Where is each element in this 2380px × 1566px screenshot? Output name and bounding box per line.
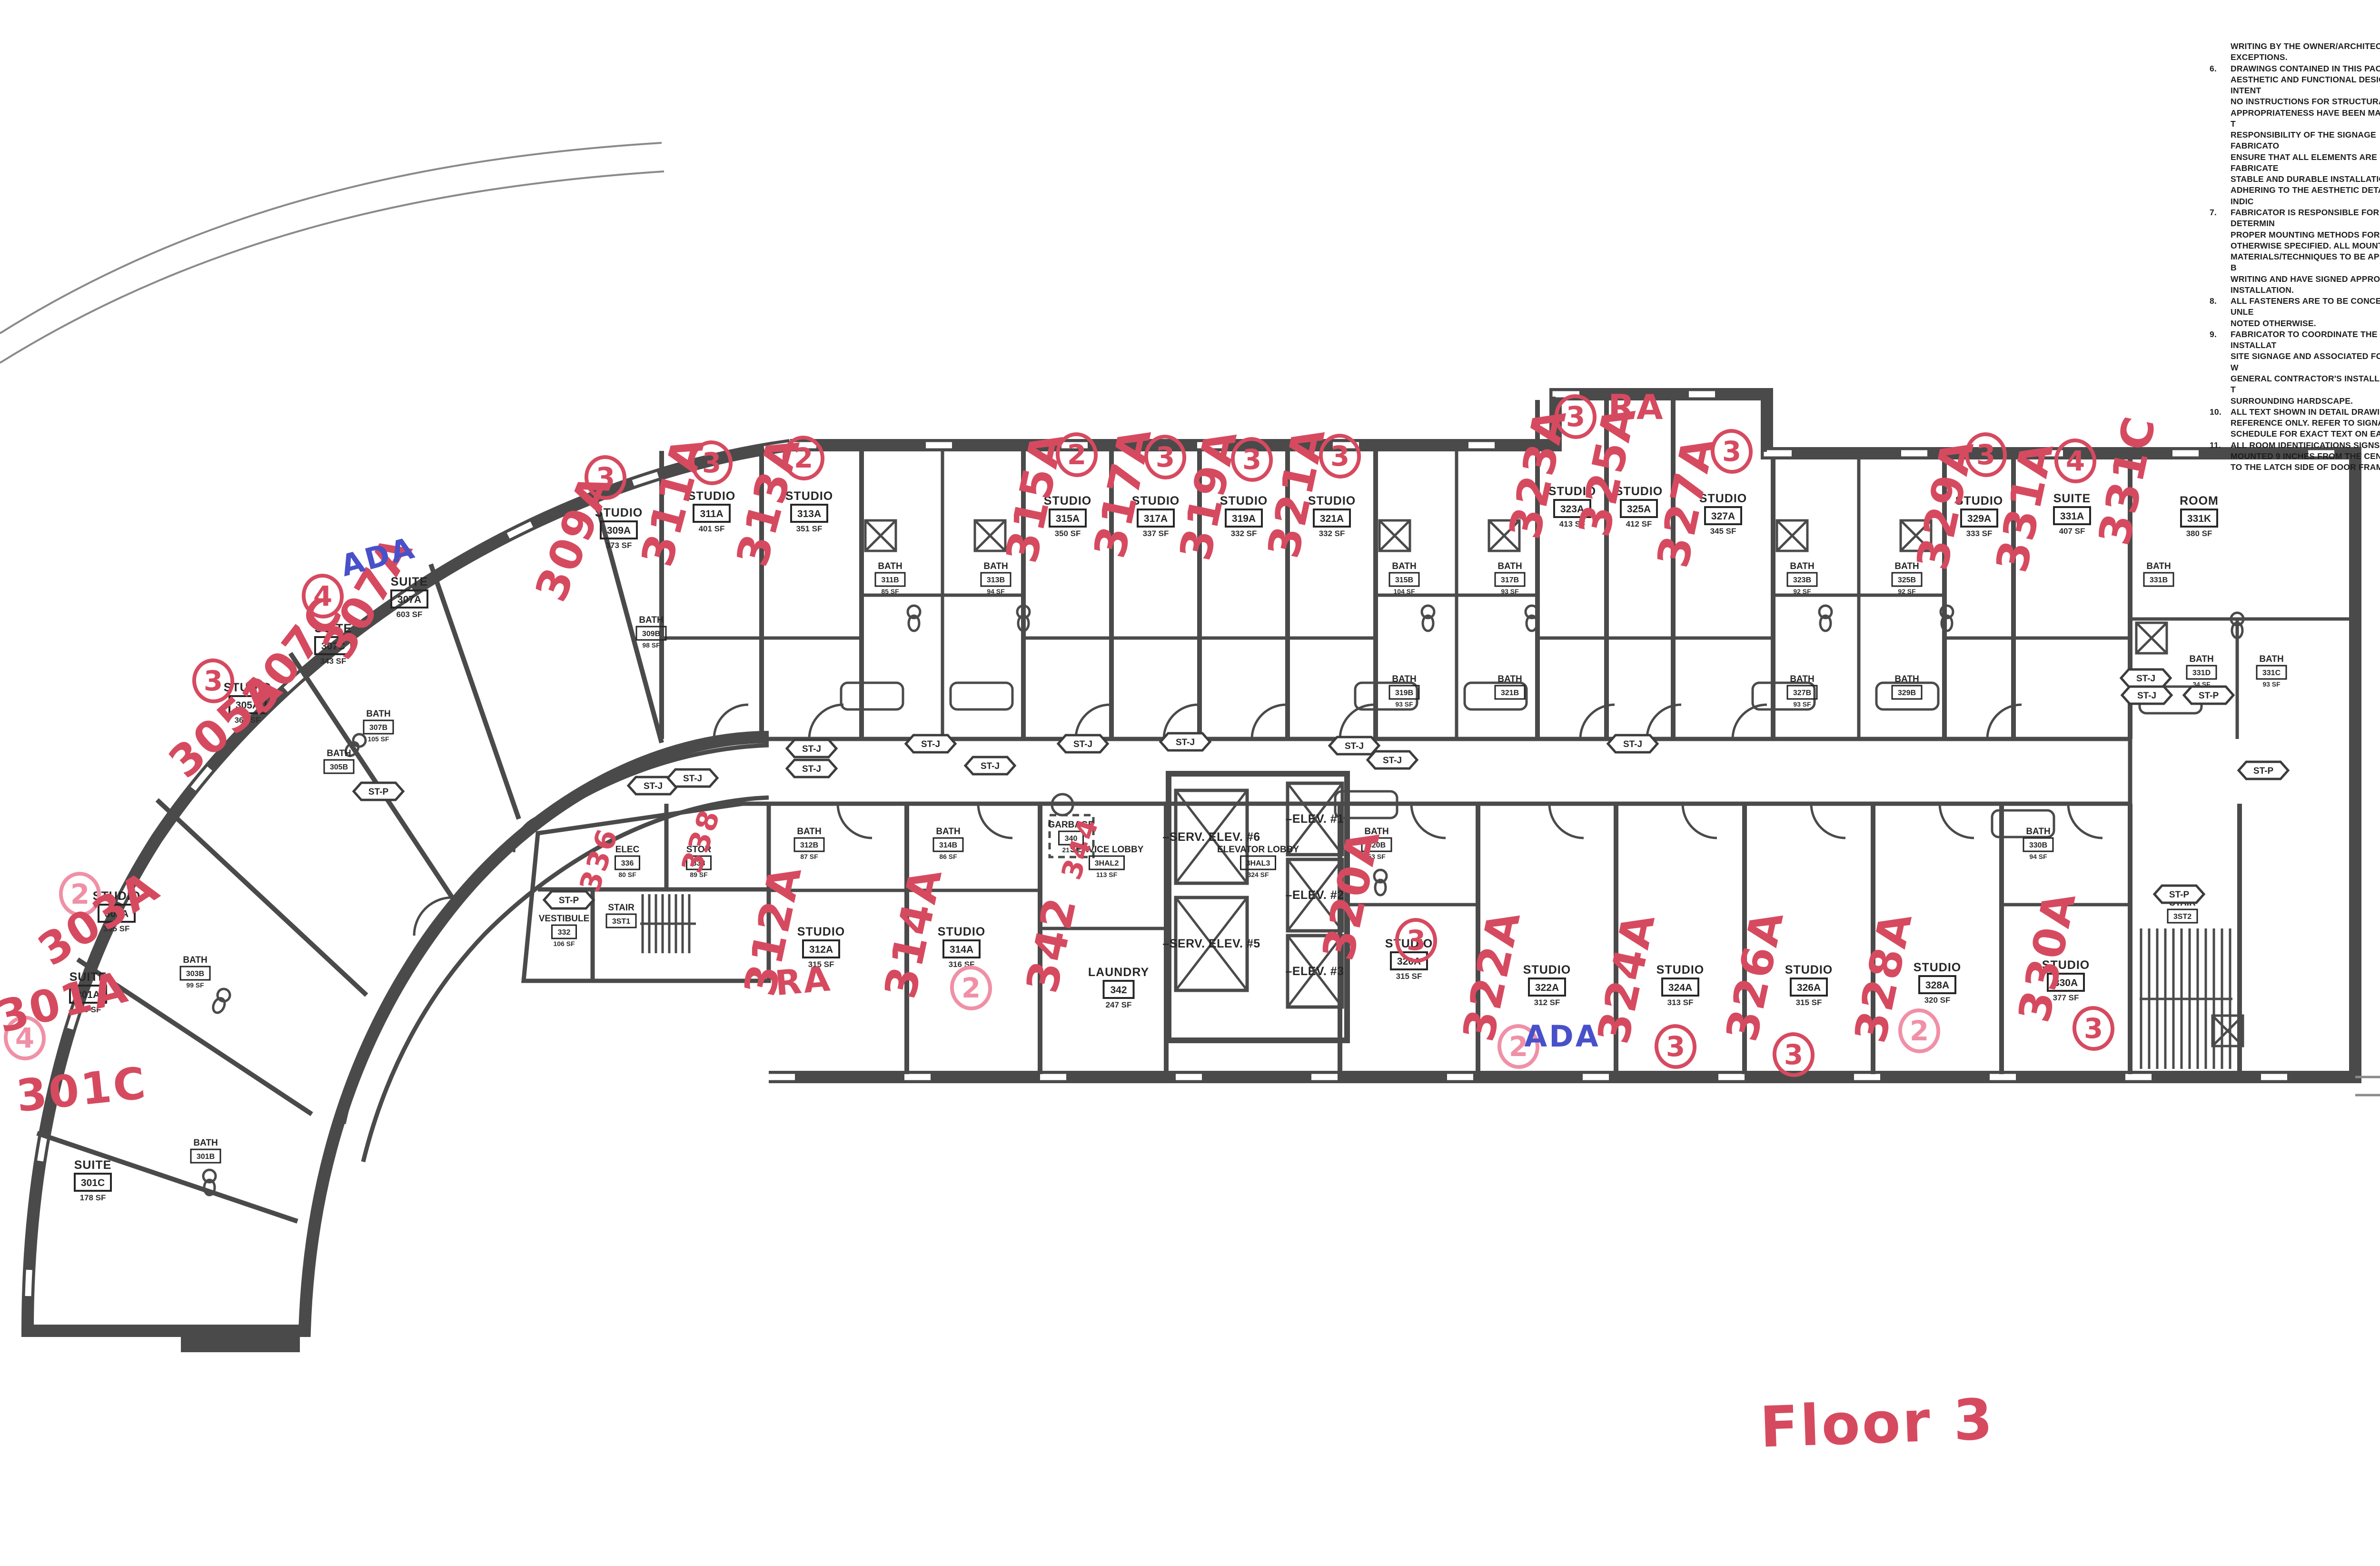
room-tag-text: 327A — [1711, 511, 1735, 522]
note-line: NO INSTRUCTIONS FOR STRUCTURAL — [2210, 96, 2380, 107]
note-number: 8. — [2210, 296, 2217, 307]
room-tag-text: 317A — [1144, 513, 1168, 524]
tag-ST-J: ST-J — [965, 757, 1015, 774]
room-type-text: BATH — [1392, 674, 1416, 684]
room-label-331A: SUITE331A407 SF — [2053, 492, 2091, 536]
room-label-327B: BATH327B93 SF — [1787, 674, 1817, 708]
note-line: MOUNTED 9 INCHES FROM THE CENTER OF T — [2210, 451, 2380, 462]
room-type-text: BATH — [1497, 561, 1522, 571]
room-type-text: BATH — [983, 561, 1008, 571]
tag-ST-J: ST-J — [1160, 733, 1210, 750]
room-tag-text: 313A — [797, 509, 821, 519]
room-tag-text: 301B — [197, 1153, 215, 1161]
room-label-313B: BATH313B94 SF — [981, 561, 1011, 595]
note-line: INSTALLATION. — [2210, 285, 2380, 296]
room-type-text: BATH — [183, 955, 207, 965]
room-tag-text: 321A — [1320, 513, 1344, 524]
room-tag-text: 307B — [369, 724, 387, 732]
handwritten-338: 338 — [675, 805, 727, 877]
room-label-331C: BATH331C93 SF — [2257, 654, 2286, 688]
room-sf-text: 401 SF — [699, 524, 725, 533]
hexagon-tag-text: ST-P — [368, 787, 389, 797]
room-tag-text: 312B — [800, 841, 818, 849]
elevator-label: –ELEV. #1 — [1285, 812, 1344, 826]
count-circle-number: 2 — [1910, 1015, 1929, 1047]
count-circle: 2 — [949, 965, 992, 1011]
room-type-text: STUDIO — [1914, 961, 1961, 974]
room-tag-text: 326A — [1797, 982, 1821, 993]
room-tag-text: 305B — [330, 763, 348, 771]
note-line: SITE SIGNAGE AND ASSOCIATED FOOTINGS W — [2210, 351, 2380, 373]
room-sf-text: 94 SF — [987, 588, 1005, 595]
room-label-331K: ROOM331K380 SF — [2180, 494, 2219, 538]
room-type-text: VESTIBULE — [539, 914, 590, 924]
handwritten-floor-3: Floor 3 — [1759, 1386, 1995, 1460]
room-sf-text: 86 SF — [939, 853, 957, 860]
tag-ST-P: ST-P — [544, 891, 594, 908]
note-line: OTHERWISE SPECIFIED. ALL MOUNTING — [2210, 240, 2380, 251]
room-type-text: ROOM — [2180, 494, 2219, 508]
handwritten-ra: RA — [1608, 387, 1665, 427]
note-line: AESTHETIC AND FUNCTIONAL DESIGN INTENT — [2210, 74, 2380, 97]
count-circle-number: 2 — [962, 972, 981, 1004]
note-line: SURROUNDING HARDSCAPE. — [2210, 396, 2380, 407]
note-number: 10. — [2210, 407, 2221, 418]
balcony-strip — [181, 1333, 300, 1352]
room-type-text: STUDIO — [1523, 963, 1571, 977]
room-label-305B: BATH305B — [324, 748, 354, 773]
room-sf-text: 350 SF — [1055, 529, 1081, 538]
floor-plan-drawing: STUDIO309A373 SFSTUDIO311A401 SFSTUDIO31… — [0, 0, 2380, 1566]
note-line: WRITING AND HAVE SIGNED APPROVAL PRIO — [2210, 274, 2380, 285]
note-line: ADHERING TO THE AESTHETIC DETAILS INDIC — [2210, 185, 2380, 207]
room-label-311B: BATH311B85 SF — [875, 561, 905, 595]
room-tag-text: 327B — [1793, 689, 1811, 697]
note-line: RESPONSIBILITY OF THE SIGNAGE FABRICATO — [2210, 130, 2380, 152]
room-sf-text: 324 SF — [1247, 871, 1269, 878]
note-line: 6.DRAWINGS CONTAINED IN THIS PACKAGE AR — [2210, 63, 2380, 74]
hexagon-tag-text: ST-P — [2169, 890, 2190, 900]
room-type-text: SUITE — [74, 1158, 112, 1172]
room-label-314A: STUDIO314A316 SF — [938, 925, 985, 969]
note-line: REFERENCE ONLY. REFER TO SIGNAGE MESS — [2210, 418, 2380, 429]
count-circle: 3 — [1654, 1024, 1697, 1069]
tag-ST-J: ST-J — [668, 769, 717, 787]
room-type-text: BATH — [2146, 561, 2171, 571]
hexagon-tag-text: ST-J — [921, 739, 940, 749]
room-tag-text: 329B — [1898, 689, 1916, 697]
room-sf-text: 313 SF — [1667, 998, 1694, 1007]
room-tag-text: 3HAL3 — [1246, 859, 1270, 868]
room-type-text: BATH — [2259, 654, 2283, 664]
room-tag-text: 331D — [2192, 669, 2211, 677]
room-sf-text: 93 SF — [1501, 588, 1519, 595]
room-tag-text: 315A — [1056, 513, 1080, 524]
count-circle-number: 3 — [1407, 924, 1426, 957]
note-line: NOTED OTHERWISE. — [2210, 318, 2380, 329]
hexagon-tag-text: ST-J — [1073, 739, 1092, 749]
room-type-text: BATH — [366, 709, 390, 719]
hexagon-tag-text: ST-J — [2137, 691, 2156, 701]
room-tag-text: 319A — [1232, 513, 1256, 524]
count-circle-number: 3 — [1722, 435, 1741, 468]
count-circle-number: 3 — [1784, 1038, 1803, 1071]
room-tag-text: 322A — [1535, 982, 1559, 993]
room-tag-text: 336 — [621, 859, 634, 868]
room-tag-text: 3ST1 — [612, 918, 630, 926]
note-number: 9. — [2210, 329, 2217, 340]
room-type-text: STUDIO — [1656, 963, 1704, 977]
room-sf-text: 93 SF — [1395, 700, 1413, 708]
hexagon-tag-text: ST-J — [981, 761, 1000, 771]
room-sf-text: 412 SF — [1626, 519, 1652, 529]
note-line: 10.ALL TEXT SHOWN IN DETAIL DRAWINGS IS … — [2210, 407, 2380, 418]
room-tag-text: 331B — [2150, 576, 2168, 584]
room-sf-text: 94 SF — [2029, 853, 2047, 860]
stair-tag-layer: ST-JST-JST-JST-JST-JST-JST-JST-JST-JST-J… — [354, 669, 2288, 908]
room-tag-text: 307A — [397, 594, 421, 605]
room-label-314B: BATH314B86 SF — [933, 827, 963, 860]
room-sf-text: 333 SF — [1966, 529, 1993, 538]
room-tag-text: 301C — [81, 1177, 105, 1188]
room-label-323B: BATH323B92 SF — [1787, 561, 1817, 595]
room-label-301C: SUITE301C178 SF — [74, 1158, 112, 1202]
tag-ST-P: ST-P — [2184, 687, 2233, 704]
count-circle: 2 — [1897, 1008, 1941, 1054]
room-type-text: BATH — [1497, 674, 1522, 684]
handwritten-342: 342 — [1017, 892, 1087, 997]
room-sf-text: 113 SF — [1096, 871, 1118, 878]
hexagon-tag-text: ST-J — [1383, 756, 1402, 766]
handwritten-331c: 331C — [2089, 411, 2166, 550]
note-line: 9.FABRICATOR TO COORDINATE THE INSTALLAT — [2210, 329, 2380, 351]
room-sf-text: 373 SF — [606, 541, 632, 550]
hexagon-tag-text: ST-J — [1345, 741, 1364, 751]
room-tag-text: 323B — [1793, 576, 1811, 584]
room-tag-text: 342 — [1110, 985, 1127, 996]
room-sf-text: 99 SF — [186, 981, 204, 989]
room-type-text: STUDIO — [938, 925, 985, 938]
count-circle-number: 3 — [204, 665, 223, 697]
room-type-text: BATH — [936, 827, 960, 837]
room-type-text: BATH — [878, 561, 902, 571]
room-sf-text: 92 SF — [1898, 588, 1916, 595]
handwritten-ada: ADA — [1524, 1019, 1600, 1054]
room-type-text: STAIR — [608, 903, 635, 913]
room-tag-text: 312A — [809, 944, 833, 955]
room-label-329B: BATH329B — [1892, 674, 1922, 699]
room-sf-text: 105 SF — [367, 735, 389, 743]
room-sf-text: 315 SF — [1396, 972, 1422, 981]
hexagon-tag-text: ST-P — [2199, 691, 2219, 701]
room-type-text: BATH — [2189, 654, 2213, 664]
hexagon-tag-text: ST-P — [559, 896, 579, 906]
room-tag-text: 314B — [939, 841, 957, 849]
tag-ST-P: ST-P — [2154, 886, 2204, 903]
note-line: STABLE AND DURABLE INSTALLATION WHILE — [2210, 174, 2380, 185]
count-circle: 3 — [1772, 1032, 1815, 1077]
room-label-321B: BATH321B — [1495, 674, 1525, 699]
room-type-text: BATH — [1790, 674, 1814, 684]
room-label-322A: STUDIO322A312 SF — [1523, 963, 1571, 1007]
room-sf-text: 87 SF — [800, 853, 818, 860]
room-sf-text: 85 SF — [881, 588, 899, 595]
room-type-text: BATH — [327, 748, 351, 758]
scanned-floor-plan-page: STUDIO309A373 SFSTUDIO311A401 SFSTUDIO31… — [0, 0, 2380, 1566]
tag-ST-J: ST-J — [1329, 737, 1379, 754]
room-label-319B: BATH319B93 SF — [1389, 674, 1419, 708]
room-sf-text: 332 SF — [1231, 529, 1257, 538]
room-type-text: ELEVATOR LOBBY — [1217, 845, 1299, 855]
room-tag-text: 325A — [1627, 504, 1651, 515]
room-label-303B: BATH303B99 SF — [180, 955, 210, 989]
tag-ST-J: ST-J — [2121, 669, 2171, 687]
stair-treads-left — [640, 894, 696, 953]
tag-ST-J: ST-J — [2122, 687, 2172, 704]
general-notes: WRITING BY THE OWNER/ARCHITECT: NOEXCEPT… — [2210, 41, 2380, 473]
note-line: 8.ALL FASTENERS ARE TO BE CONCEALED UNLE — [2210, 296, 2380, 318]
room-label-331B: BATH331B — [2144, 561, 2173, 586]
note-line: TO THE LATCH SIDE OF DOOR FRAME. — [2210, 462, 2380, 473]
room-tag-text: 313B — [987, 576, 1005, 584]
room-type-text: BATH — [639, 615, 663, 625]
elevator-label: –ELEV. #3 — [1285, 965, 1344, 978]
room-label-315B: BATH315B104 SF — [1389, 561, 1419, 595]
room-type-text: BATH — [1790, 561, 1814, 571]
room-label-328A: STUDIO328A320 SF — [1914, 961, 1961, 1005]
room-type-text: STUDIO — [797, 925, 845, 938]
room-tag-text: 314A — [950, 944, 973, 955]
elevator-label: –SERV. ELEV. #5 — [1162, 937, 1260, 950]
room-sf-text: 312 SF — [1534, 998, 1560, 1007]
room-label-312B: BATH312B87 SF — [794, 827, 824, 860]
room-tag-text: 303B — [186, 970, 204, 978]
room-label-324A: STUDIO324A313 SF — [1656, 963, 1704, 1007]
room-sf-text: 603 SF — [397, 610, 423, 619]
room-sf-text: 92 SF — [1793, 588, 1811, 595]
room-sf-text: 320 SF — [1924, 996, 1951, 1005]
room-type-text: STUDIO — [1785, 963, 1833, 977]
room-label-342: LAUNDRY342247 SF — [1088, 966, 1149, 1009]
handwritten-annotation-layer: 301C301A303A305A307C307A309A311A313A315A… — [0, 387, 2166, 1460]
room-label-3ST1: STAIR3ST1 — [606, 903, 636, 928]
room-tag-text: 311B — [881, 576, 899, 584]
room-tag-text: 3HAL2 — [1095, 859, 1119, 868]
room-type-text: BATH — [2026, 827, 2050, 837]
hexagon-tag-text: ST-J — [802, 744, 821, 754]
room-tag-text: 331A — [2060, 511, 2084, 522]
count-circle-number: 3 — [1666, 1030, 1685, 1063]
note-number: 6. — [2210, 63, 2217, 74]
room-tag-text: 317B — [1501, 576, 1519, 584]
tag-ST-J: ST-J — [1368, 751, 1417, 768]
note-line: MATERIALS/TECHNIQUES TO BE APPROVED B — [2210, 251, 2380, 274]
room-sf-text: 407 SF — [2059, 527, 2085, 536]
count-circle-number: 3 — [1330, 440, 1349, 472]
handwritten-330a: 330A — [2009, 886, 2086, 1027]
room-sf-text: 332 SF — [1319, 529, 1345, 538]
hexagon-tag-text: ST-P — [2253, 766, 2274, 776]
tag-ST-J: ST-J — [1608, 735, 1657, 752]
room-tag-text: 324A — [1668, 982, 1692, 993]
note-line: SCHEDULE FOR EXACT TEXT ON EACH SIGN. — [2210, 429, 2380, 439]
room-label-301B: BATH301B — [191, 1138, 220, 1163]
room-type-text: BATH — [1894, 674, 1919, 684]
count-circle-number: 3 — [1242, 443, 1261, 476]
room-sf-text: 98 SF — [642, 641, 660, 649]
tag-ST-J: ST-J — [787, 740, 836, 757]
handwritten-326a: 326A — [1716, 905, 1794, 1046]
room-type-text: LAUNDRY — [1088, 966, 1149, 979]
tag-ST-J: ST-J — [787, 760, 836, 777]
room-sf-text: 93 SF — [2262, 680, 2281, 688]
room-label-332: VESTIBULE332106 SF — [539, 914, 590, 948]
note-line: WRITING BY THE OWNER/ARCHITECT: NO — [2210, 41, 2380, 52]
tag-ST-P: ST-P — [354, 783, 403, 800]
note-number: 7. — [2210, 207, 2217, 218]
room-sf-text: 106 SF — [553, 940, 575, 948]
room-tag-text: 329A — [1967, 513, 1991, 524]
hexagon-tag-text: ST-J — [1176, 738, 1195, 748]
note-line: 7.FABRICATOR IS RESPONSIBLE FOR DETERMIN — [2210, 207, 2380, 229]
room-tag-text: 332 — [558, 928, 571, 937]
room-type-text: BATH — [1392, 561, 1416, 571]
hexagon-tag-text: ST-J — [2136, 674, 2155, 684]
room-label-317B: BATH317B93 SF — [1495, 561, 1525, 595]
room-tag-text: 330B — [2029, 841, 2047, 849]
bathtub-symbols — [841, 683, 2201, 837]
room-sf-text: 351 SF — [796, 524, 823, 533]
room-tag-text: 325B — [1898, 576, 1916, 584]
handwritten-ra: RA — [773, 958, 833, 1003]
hexagon-tag-text: ST-J — [802, 764, 821, 774]
room-sf-text: 380 SF — [2186, 529, 2212, 538]
room-tag-text: 321B — [1501, 689, 1519, 697]
room-sf-text: 104 SF — [1393, 588, 1415, 595]
room-label-331D: BATH331D34 SF — [2187, 654, 2216, 688]
room-tag-text: 311A — [700, 509, 723, 519]
room-sf-text: 315 SF — [1796, 998, 1822, 1007]
room-sf-text: 93 SF — [1793, 700, 1811, 708]
tag-ST-J: ST-J — [1058, 735, 1108, 752]
room-sf-text: 247 SF — [1106, 1000, 1132, 1009]
elevator-label: –SERV. ELEV. #6 — [1162, 830, 1260, 844]
note-line: APPROPRIATENESS HAVE BEEN MADE. IT IS T — [2210, 108, 2380, 130]
room-sf-text: 80 SF — [618, 871, 636, 878]
note-line: GENERAL CONTRACTOR'S INSTALLATION OF T — [2210, 373, 2380, 396]
room-type-text: BATH — [193, 1138, 218, 1148]
note-line: 11.ALL ROOM IDENTIFICATIONS SIGNS ARE TO… — [2210, 440, 2380, 451]
room-tag-text: 3ST2 — [2173, 913, 2192, 921]
room-label-326A: STUDIO326A315 SF — [1785, 963, 1833, 1007]
room-label-330B: BATH330B94 SF — [2023, 827, 2053, 860]
count-circle: 3 — [2072, 1006, 2115, 1051]
room-type-text: SUITE — [2053, 492, 2091, 505]
note-line: EXCEPTIONS. — [2210, 52, 2380, 63]
note-line: PROPER MOUNTING METHODS FOR SIGNS U — [2210, 229, 2380, 240]
room-sf-text: 178 SF — [80, 1193, 106, 1202]
room-tag-text: 309B — [642, 630, 660, 638]
count-circle-number: 3 — [2084, 1012, 2103, 1045]
tag-ST-P: ST-P — [2239, 762, 2288, 779]
room-tag-text: 331K — [2187, 513, 2211, 524]
room-sf-text: 345 SF — [1710, 527, 1736, 536]
room-tag-text: 328A — [1925, 980, 1949, 991]
note-number: 11. — [2210, 440, 2221, 451]
stair-treads-right — [2140, 928, 2232, 1069]
hexagon-tag-text: ST-J — [683, 774, 702, 784]
room-type-text: BATH — [797, 827, 821, 837]
room-label-307B: BATH307B105 SF — [364, 709, 393, 743]
site-boundary-arcs — [0, 143, 664, 363]
count-circle-number: 4 — [2066, 445, 2085, 477]
bottom-bath-partitions — [769, 890, 2130, 928]
handwritten-301c: 301C — [14, 1057, 149, 1122]
hexagon-tag-text: ST-J — [1623, 739, 1642, 749]
room-sf-text: 337 SF — [1143, 529, 1169, 538]
hexagon-tag-text: ST-J — [644, 781, 663, 791]
room-tag-text: 315B — [1395, 576, 1413, 584]
tag-ST-J: ST-J — [906, 735, 955, 752]
room-label-325B: BATH325B92 SF — [1892, 561, 1922, 595]
room-tag-text: 309A — [607, 525, 631, 536]
note-line: ENSURE THAT ALL ELEMENTS ARE FABRICATE — [2210, 152, 2380, 174]
room-tag-text: 331C — [2262, 669, 2281, 677]
room-tag-text: 319B — [1395, 689, 1413, 697]
